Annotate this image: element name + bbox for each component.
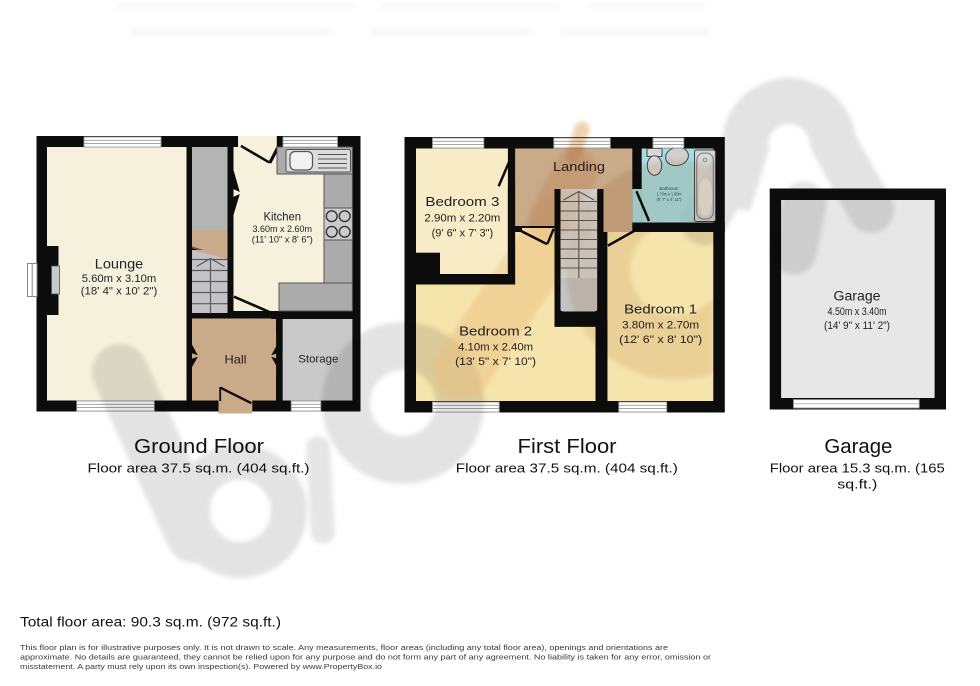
svg-text:(11' 10" x 8' 6"): (11' 10" x 8' 6") (252, 235, 313, 246)
svg-text:misstatement. A party must rel: misstatement. A party must rely upon its… (20, 664, 382, 671)
svg-text:Floor area 15.3 sq.m. (165: Floor area 15.3 sq.m. (165 (770, 461, 945, 476)
svg-text:Lounge: Lounge (95, 257, 144, 272)
svg-text:Garage: Garage (834, 289, 881, 304)
svg-text:This floor plan is for illustr: This floor plan is for illustrative purp… (20, 645, 668, 652)
svg-text:sq.ft.): sq.ft.) (837, 477, 877, 492)
svg-text:5.60m x 3.10m: 5.60m x 3.10m (82, 273, 157, 285)
svg-text:(9' 6" x 7' 3"): (9' 6" x 7' 3") (432, 228, 494, 240)
svg-text:2.90m x 2.20m: 2.90m x 2.20m (424, 213, 500, 225)
svg-text:(14' 9" x 11' 2"): (14' 9" x 11' 2") (824, 320, 890, 332)
svg-text:Hall: Hall (225, 353, 247, 367)
svg-text:Floor area 37.5 sq.m. (404 sq.: Floor area 37.5 sq.m. (404 sq.ft.) (456, 461, 678, 476)
svg-text:4.50m x 3.40m: 4.50m x 3.40m (828, 306, 887, 318)
svg-text:approximate. No details are gu: approximate. No details are guaranteed, … (20, 655, 712, 662)
svg-text:Bedroom 3: Bedroom 3 (425, 194, 499, 209)
svg-text:Kitchen: Kitchen (264, 210, 302, 224)
svg-text:Garage: Garage (824, 435, 892, 458)
svg-text:3.60m x 2.60m: 3.60m x 2.60m (253, 224, 313, 235)
svg-text:(18' 4" x 10' 2"): (18' 4" x 10' 2") (81, 286, 158, 298)
svg-text:Total floor area: 90.3 sq.m. (: Total floor area: 90.3 sq.m. (972 sq.ft.… (20, 615, 281, 631)
svg-text:First Floor: First Floor (518, 435, 617, 458)
